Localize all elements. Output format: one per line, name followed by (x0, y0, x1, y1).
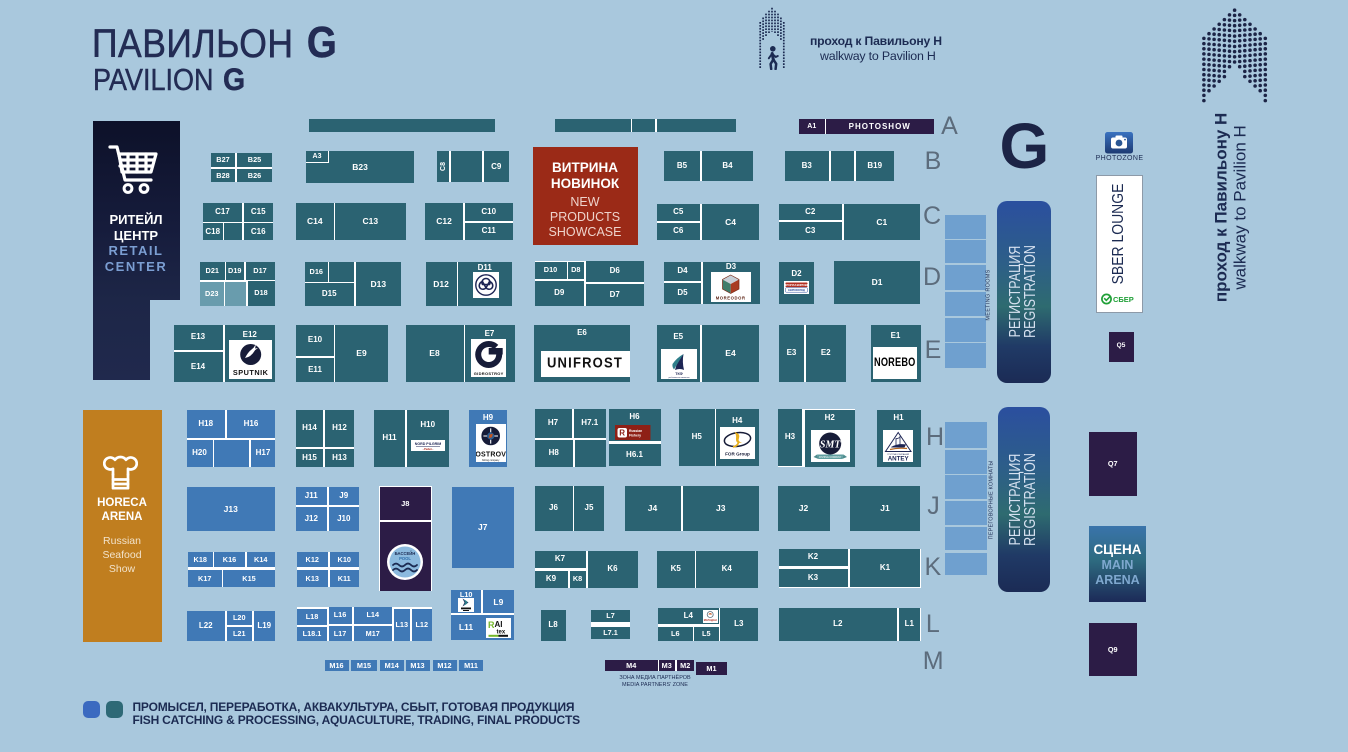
svg-text:ANTEY: ANTEY (887, 456, 909, 463)
svg-text:ТКФ: ТКФ (675, 372, 682, 376)
svg-text:~РЫБА~: ~РЫБА~ (423, 446, 434, 450)
svg-text:Russian: Russian (629, 429, 642, 433)
svg-text:MOREODOR: MOREODOR (716, 296, 746, 301)
svg-text:рыболовная компания: рыболовная компания (669, 377, 690, 379)
svg-text:Fishery: Fishery (629, 433, 641, 437)
svg-text:fishing company: fishing company (482, 459, 500, 462)
svg-text:POOL: POOL (399, 556, 411, 561)
svg-text:tex: tex (497, 629, 506, 635)
svg-text:AI: AI (495, 620, 503, 629)
svg-text:SMT: SMT (820, 440, 841, 451)
svg-text:NORD PILGRIM: NORD PILGRIM (415, 442, 442, 446)
svg-text:ЕВРОХОЛОД: ЕВРОХОЛОД (788, 288, 805, 292)
svg-text:FISHING COMPANY: FISHING COMPANY (819, 456, 842, 459)
svg-text:R: R (619, 428, 625, 437)
svg-text:OSTROV: OSTROV (476, 451, 506, 458)
svg-text:СБЕР: СБЕР (1113, 295, 1134, 304)
svg-text:FOR Group: FOR Group (725, 451, 750, 456)
svg-text:GIDROSTROY: GIDROSTROY (473, 371, 503, 376)
svg-text:МАГАДАН: МАГАДАН (704, 618, 717, 622)
svg-text:ЕВРОГЛАЗИРОВКА: ЕВРОГЛАЗИРОВКА (784, 283, 809, 287)
svg-text:SPUTNIK: SPUTNIK (232, 368, 268, 377)
